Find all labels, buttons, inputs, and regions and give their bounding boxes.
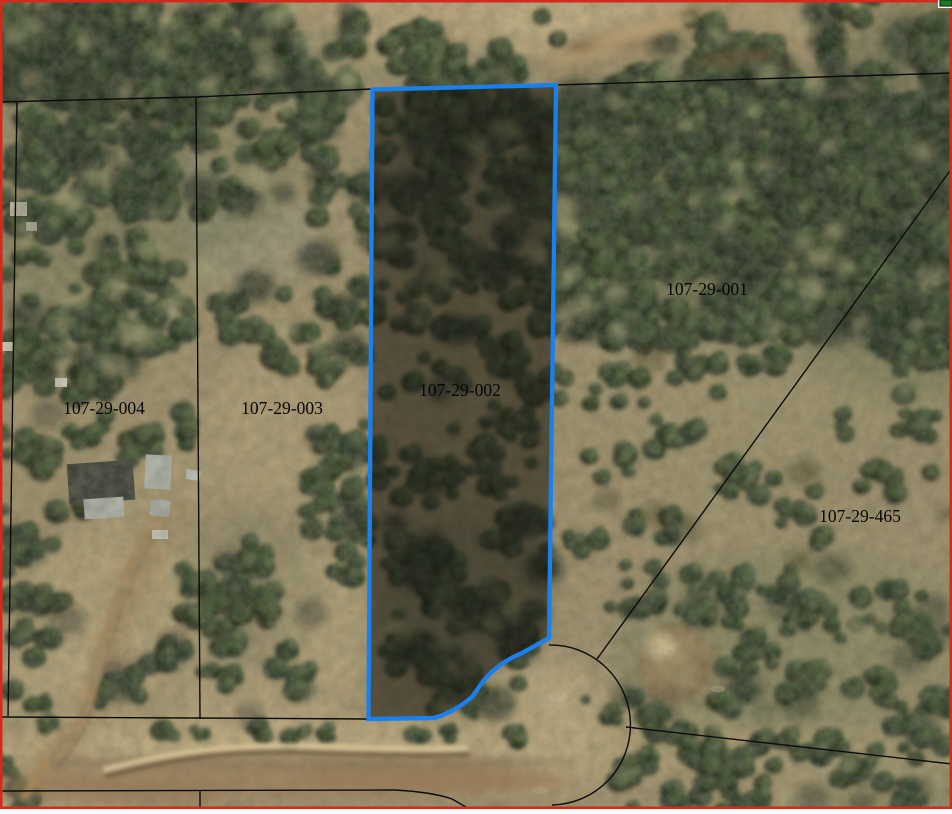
svg-text:107-29-465: 107-29-465	[819, 506, 901, 526]
svg-text:107-29-003: 107-29-003	[241, 398, 323, 418]
svg-text:107-29-001: 107-29-001	[666, 279, 748, 299]
svg-text:107-29-004: 107-29-004	[63, 398, 145, 418]
svg-text:107-29-002: 107-29-002	[419, 380, 501, 400]
